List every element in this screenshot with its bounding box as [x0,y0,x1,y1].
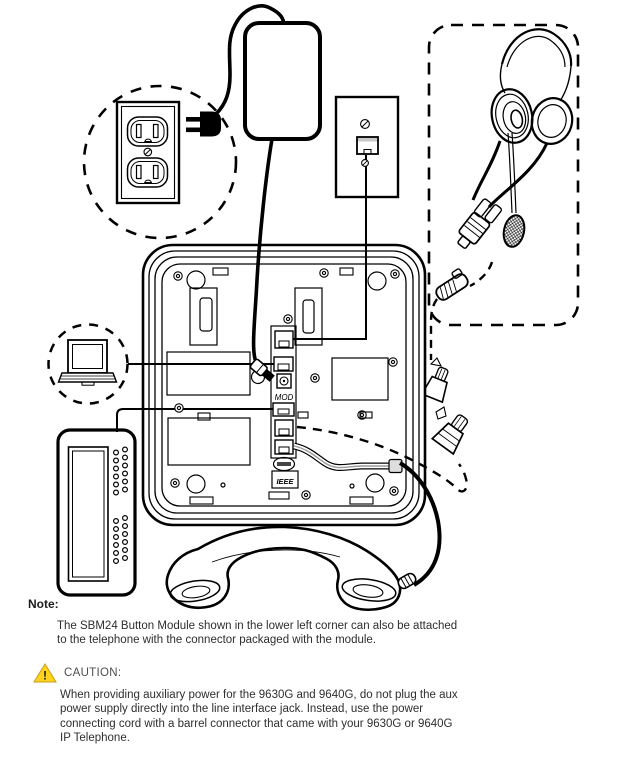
connector-plug-icon [422,364,454,402]
handset [167,527,418,610]
dashed-cord [431,299,437,360]
laptop-callout [49,325,128,404]
caution-line: When providing auxiliary power for the 9… [60,688,458,702]
page: MOD IEEE [0,0,621,766]
power-outlet-callout [84,86,236,238]
warning-triangle-icon: ! [33,663,57,683]
caution-heading-row: ! CAUTION: [33,663,121,683]
sbm24-button-module [58,430,135,595]
headset-cord-connectors [422,358,475,454]
quick-disconnect-clip-icon [431,268,470,302]
power-adapter-assembly [186,6,320,139]
caution-line: connecting cord with a barrel connector … [60,717,458,731]
outlet-ground-hole [145,139,152,141]
note-heading: Note: [28,597,59,611]
handset-body [167,527,400,610]
power-adapter-brick [245,23,320,139]
plug-prong [186,128,201,133]
caution-line: power supply directly into the line inte… [60,702,458,716]
dashed-callout-circle [49,325,128,404]
caution-line: IP Telephone. [60,731,458,745]
ac-plug-icon [186,112,221,137]
ieee-port-label: IEEE [276,477,294,486]
installation-diagram: MOD IEEE [0,0,621,766]
mic-boom [508,133,512,213]
mod-port-label: MOD [275,393,294,402]
cord-anchor [389,460,402,473]
ip-telephone-base-rear: MOD IEEE [143,245,425,525]
headset-callout [429,25,578,360]
screw-icon [175,404,183,412]
plug-prong [186,117,201,122]
dashed-cord [470,262,492,286]
outlet-slot [154,125,159,138]
note-line: The SBM24 Button Module shown in the low… [57,619,457,633]
headset-plug-icon [453,197,503,252]
caution-body: When providing auxiliary power for the 9… [60,688,458,746]
handset-cord-boot [396,572,417,591]
ear-cup-right [527,94,577,148]
warning-exclamation: ! [43,669,47,683]
headset [453,29,577,252]
note-line: to the telephone with the connector pack… [57,633,457,647]
note-body: The SBM24 Button Module shown in the low… [57,619,457,648]
switch-slot [277,462,291,466]
dashed-callout-circle [84,86,236,238]
microphone-icon [501,213,527,248]
outlet-slot [137,125,142,138]
caution-heading: CAUTION: [64,667,121,679]
power-outlet [117,102,179,203]
laptop-icon [59,340,117,385]
headband [502,29,571,66]
